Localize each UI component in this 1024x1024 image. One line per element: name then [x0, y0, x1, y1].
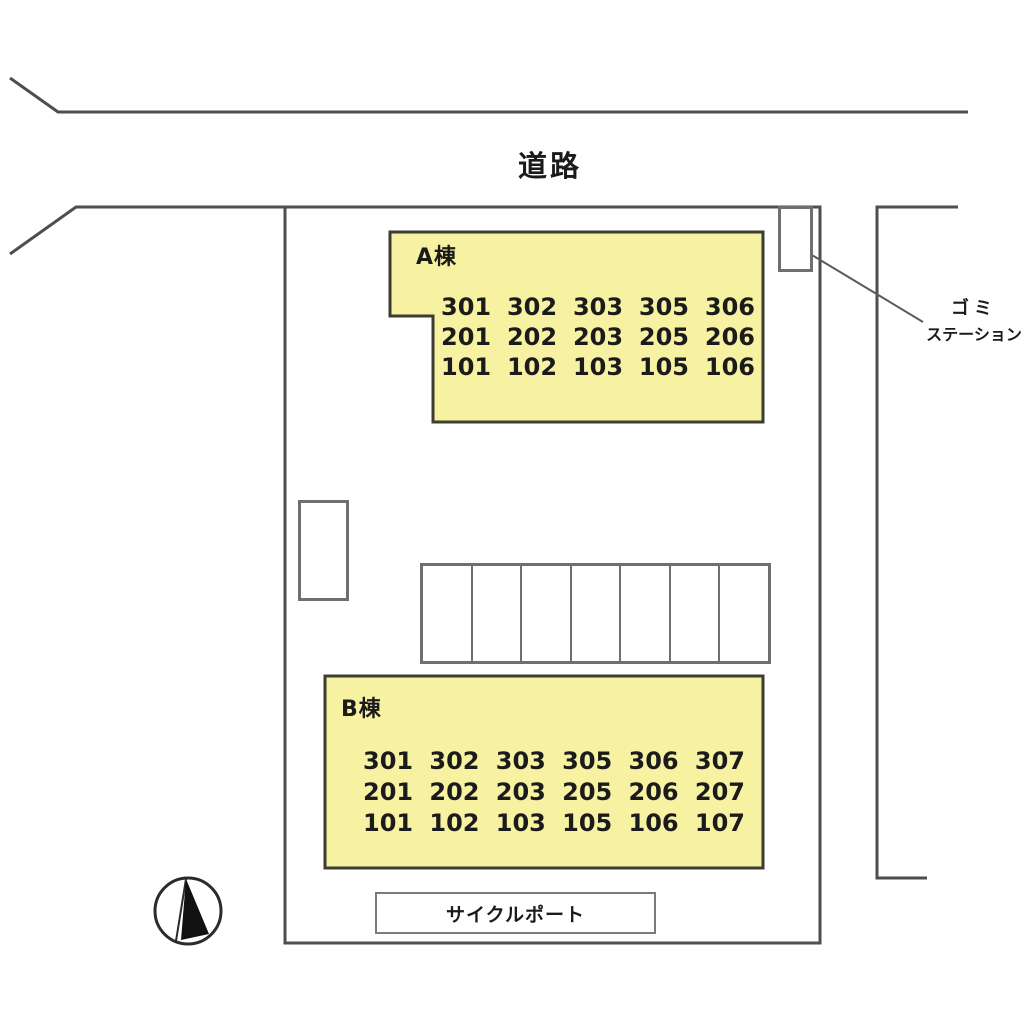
room-number: 303: [573, 295, 623, 319]
building-b-units: 301302303305306307 201202203205206207 10…: [325, 745, 763, 838]
room-number: 206: [705, 325, 755, 349]
room-number: 203: [496, 780, 546, 804]
room-number: 305: [562, 749, 612, 773]
room-number: 101: [441, 355, 491, 379]
building-a-units-row-3f: 301302303305306: [441, 292, 755, 322]
room-number: 302: [507, 295, 557, 319]
cycle-port-label: サイクルポート: [446, 900, 585, 927]
building-a-name: A棟: [416, 239, 457, 271]
room-number: 301: [441, 295, 491, 319]
room-number: 207: [695, 780, 745, 804]
room-number: 302: [429, 749, 479, 773]
room-number: 303: [496, 749, 546, 773]
room-number: 201: [441, 325, 491, 349]
building-b-units-row-3f: 301302303305306307: [363, 745, 745, 776]
building-a-units-row-1f: 101102103105106: [441, 352, 755, 382]
room-number: 101: [363, 811, 413, 835]
parking-stall: [720, 566, 768, 661]
garbage-station-box: [778, 206, 813, 272]
room-number: 305: [639, 295, 689, 319]
room-number: 103: [573, 355, 623, 379]
parking-stall: [522, 566, 572, 661]
parking-row: [420, 563, 771, 664]
parking-stall: [473, 566, 523, 661]
room-number: 102: [429, 811, 479, 835]
parking-stall: [621, 566, 671, 661]
room-number: 102: [507, 355, 557, 379]
room-number: 206: [629, 780, 679, 804]
room-number: 203: [573, 325, 623, 349]
room-number: 107: [695, 811, 745, 835]
site-plan: 道路 ゴミ ステーション A棟 301302303305306 20120220…: [0, 0, 1024, 1024]
room-number: 306: [705, 295, 755, 319]
cycle-port-box: サイクルポート: [375, 892, 656, 934]
room-number: 205: [562, 780, 612, 804]
utility-space-box: [298, 500, 349, 601]
room-number: 106: [629, 811, 679, 835]
building-b-name: B棟: [341, 691, 382, 723]
room-number: 103: [496, 811, 546, 835]
room-number: 306: [629, 749, 679, 773]
building-a-units-row-2f: 201202203205206: [441, 322, 755, 352]
room-number: 202: [429, 780, 479, 804]
room-number: 201: [363, 780, 413, 804]
building-b-units-row-1f: 101102103105106107: [363, 807, 745, 838]
room-number: 307: [695, 749, 745, 773]
north-arrow-icon: [155, 878, 221, 944]
room-number: 301: [363, 749, 413, 773]
road-label: 道路: [495, 143, 605, 185]
room-number: 105: [639, 355, 689, 379]
parking-stall: [423, 566, 473, 661]
room-number: 106: [705, 355, 755, 379]
road-upper-edge-line: [10, 78, 968, 112]
garbage-station-label-line2: ステーション: [900, 323, 1024, 348]
room-number: 205: [639, 325, 689, 349]
building-a-units: 301302303305306 201202203205206 10110210…: [433, 292, 763, 382]
building-b-units-row-2f: 201202203205206207: [363, 776, 745, 807]
parking-stall: [671, 566, 721, 661]
parking-stall: [572, 566, 622, 661]
garbage-station-label: ゴミ ステーション: [900, 295, 1024, 348]
room-number: 202: [507, 325, 557, 349]
room-number: 105: [562, 811, 612, 835]
garbage-station-label-line1: ゴミ: [900, 295, 1024, 323]
